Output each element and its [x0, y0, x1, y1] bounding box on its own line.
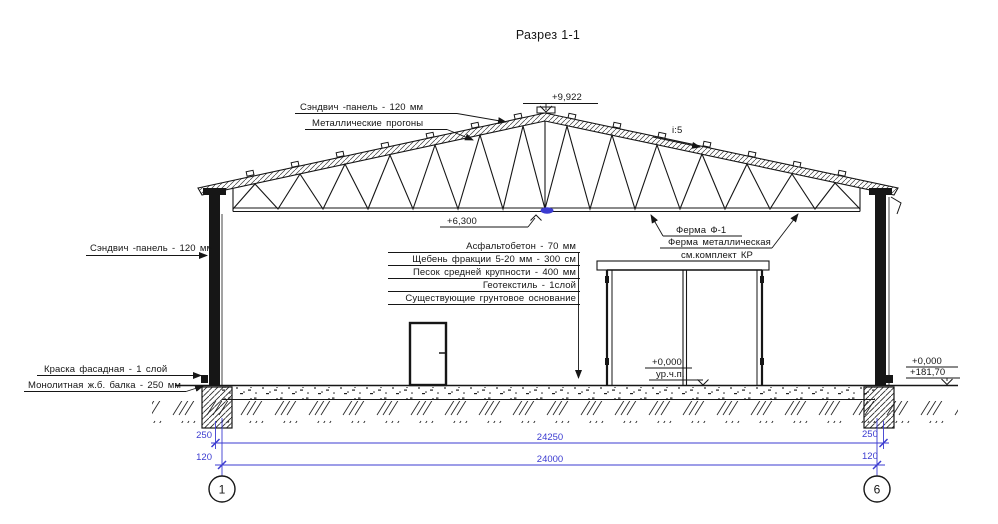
truss-name-label: Ферма Ф-1	[676, 225, 726, 236]
ground-hatch	[152, 401, 958, 423]
gate-header	[597, 261, 769, 270]
truss-material-label: Ферма металлическая	[668, 237, 771, 248]
gate	[597, 261, 769, 385]
floor-level-note: ур.ч.п.	[656, 369, 685, 380]
peak-elevation: +9,922	[523, 92, 598, 112]
dim-axes-value: 24000	[537, 454, 563, 465]
concrete-beam-label: Монолитная ж.б. балка - 250 мм	[28, 380, 181, 391]
peak-level-value: +9,922	[552, 92, 582, 103]
truss-mid-connection	[541, 207, 554, 213]
truss-webs-left	[233, 126, 545, 209]
dim-left-panel: 120	[196, 452, 212, 463]
floor-layer-1: Асфальтобетон - 70 мм	[466, 241, 576, 252]
truss-callout: Ферма Ф-1 Ферма металлическая см.комплек…	[651, 214, 798, 261]
datum-levels: +0,000 +181,70	[906, 356, 960, 385]
truss-ref-label: см.комплект КР	[681, 250, 753, 261]
chord-level-value: +6,300	[447, 216, 477, 227]
dim-overall-value: 24250	[537, 432, 563, 443]
floor-layer-3: Песок средней крупности - 400 мм	[413, 267, 576, 278]
datum-relative-value: +0,000	[912, 356, 942, 367]
dim-left-offset: 250	[196, 430, 212, 441]
axis-left-number: 1	[219, 483, 226, 497]
slope-value: i:5	[672, 125, 682, 136]
roof-panel	[198, 107, 898, 195]
wall-callout: Сэндвич -панель - 120 мм	[86, 243, 213, 256]
level-mark-up-icon	[531, 215, 542, 221]
floor-layer-4: Геотекстиль - 1слой	[483, 280, 576, 291]
left-foundation	[202, 387, 232, 428]
wall-panel-label: Сэндвич -панель - 120 мм	[90, 243, 213, 254]
gate-floor-level: +0,000 ур.ч.п.	[645, 357, 709, 385]
ground	[152, 386, 958, 429]
door	[410, 323, 446, 385]
drawing-title: Разрез 1-1	[516, 28, 580, 42]
dim-right-offset: 250	[862, 429, 878, 440]
purlins-label: Металлические прогоны	[312, 118, 423, 129]
gate-hinges	[605, 276, 764, 365]
floor-layer-5: Существующие грунтовое основание	[405, 293, 576, 304]
floor-layer-2: Щебень фракции 5-20 мм - 300 см	[412, 254, 576, 265]
dimension-chain: 24250 24000 250 120 250 120	[196, 418, 889, 476]
section-drawing: Разрез 1-1	[0, 0, 998, 524]
right-wall	[869, 188, 901, 385]
datum-absolute-value: +181,70	[910, 367, 945, 378]
truss-webs-right	[545, 126, 860, 209]
floor-level-value: +0,000	[652, 357, 682, 368]
chord-elevation: +6,300	[440, 215, 542, 227]
facade-paint-label: Краска фасадная - 1 слой	[44, 364, 167, 375]
roof-panel-label: Сэндвич -панель - 120 мм	[300, 102, 423, 113]
base-callouts: Краска фасадная - 1 слой Монолитная ж.б.…	[24, 364, 203, 392]
grid-axes: 1 6	[209, 476, 890, 502]
floor-gravel-layer	[222, 387, 875, 399]
right-foundation	[864, 387, 894, 428]
roof-band	[198, 113, 898, 195]
drawing-sheet: Разрез 1-1	[0, 0, 998, 524]
dim-right-panel: 120	[862, 451, 878, 462]
axis-right-number: 6	[874, 483, 881, 497]
left-wall	[201, 188, 226, 385]
gutter-detail	[891, 197, 901, 214]
